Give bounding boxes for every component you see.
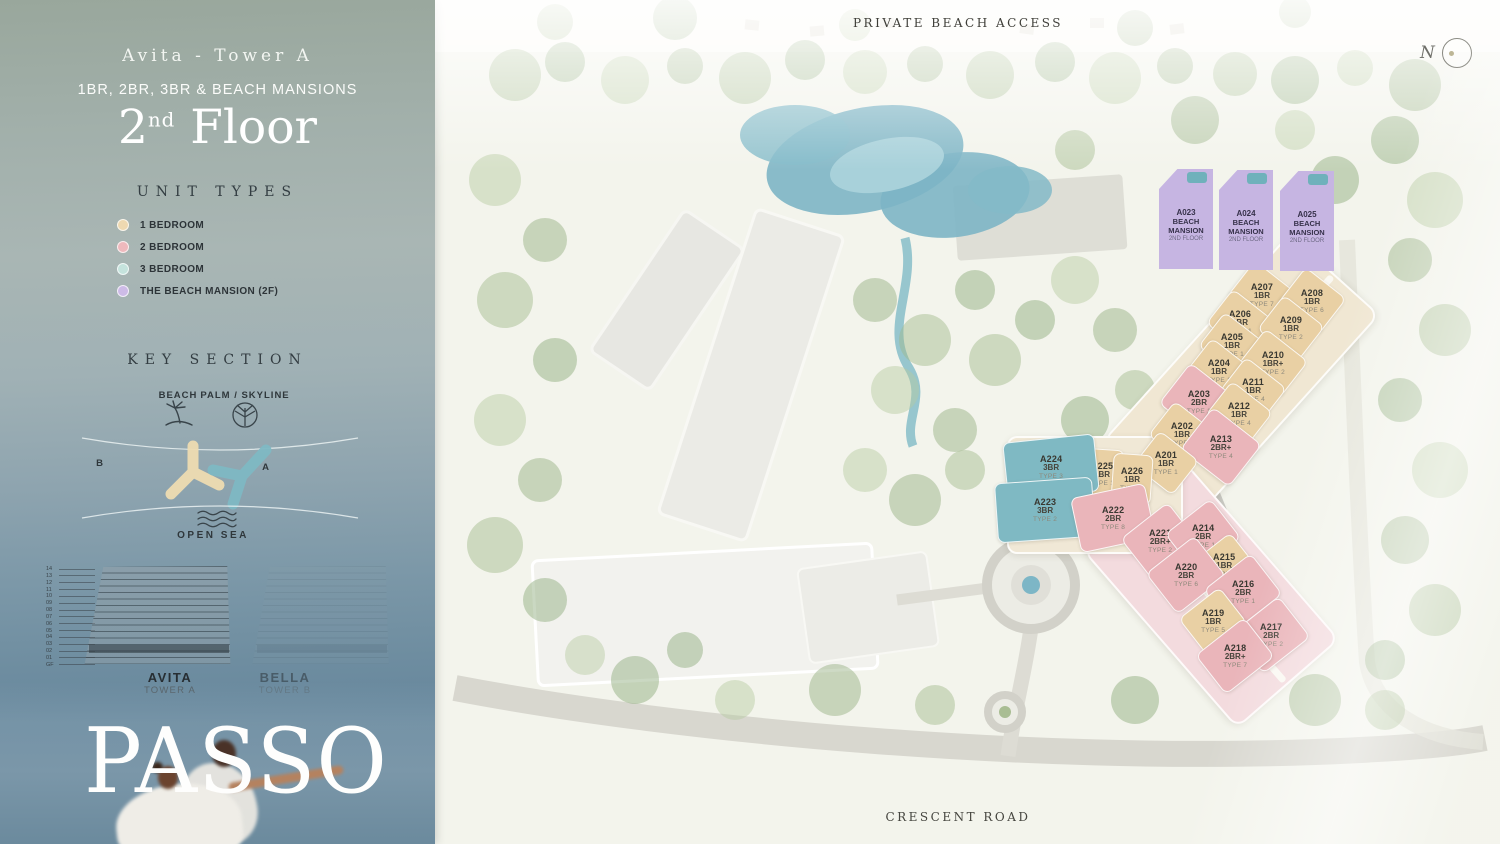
unit-bedrooms: 1BR xyxy=(1300,298,1324,307)
crescent-road-label: CRESCENT ROAD xyxy=(435,810,1481,824)
tree xyxy=(1388,238,1432,282)
mansion-floor: 2ND FLOOR xyxy=(1290,238,1324,244)
unit-type: TYPE 4 xyxy=(1209,453,1233,460)
tree xyxy=(1365,690,1405,730)
legend-label: 3 BEDROOM xyxy=(140,264,204,275)
legend-label: THE BEACH MANSION (2F) xyxy=(140,286,278,297)
tree xyxy=(1089,52,1141,104)
tree xyxy=(1051,256,1099,304)
tree xyxy=(523,218,567,262)
tower-a-letter: A xyxy=(262,462,270,473)
legend-color-dot xyxy=(117,263,129,275)
unit-type: TYPE 7 xyxy=(1223,662,1247,669)
tree xyxy=(474,394,526,446)
unit-bedrooms: 1BR xyxy=(1227,411,1251,420)
tree xyxy=(1157,48,1193,84)
beach-icon xyxy=(166,401,192,425)
mansion-pool xyxy=(1308,174,1328,185)
mansion-line2: MANSION xyxy=(1168,226,1203,235)
mansion-floor: 2ND FLOOR xyxy=(1229,237,1263,243)
tree xyxy=(871,366,919,414)
tree xyxy=(945,450,985,490)
legend-color-dot xyxy=(117,219,129,231)
tree xyxy=(1419,304,1471,356)
tree xyxy=(477,272,533,328)
tree xyxy=(1378,378,1422,422)
passo-logo: PASSO xyxy=(84,710,388,814)
unit-bedrooms: 1BR xyxy=(1250,292,1274,301)
tree xyxy=(1409,584,1461,636)
tree xyxy=(907,46,943,82)
tree xyxy=(601,56,649,104)
unit-bedrooms: 2BR xyxy=(1101,515,1125,524)
compass: N xyxy=(1420,38,1472,68)
mansion-id: A024 xyxy=(1236,209,1255,218)
mansion-line1: BEACH xyxy=(1233,218,1260,227)
private-beach-access-label: PRIVATE BEACH ACCESS xyxy=(435,16,1481,30)
site-plan: A2071BRTYPE 7A2081BRTYPE 6A2061BRTYPE 1A… xyxy=(435,0,1500,844)
tree xyxy=(719,52,771,104)
mansion-line2: MANSION xyxy=(1228,227,1263,236)
legend-label: 2 BEDROOM xyxy=(140,242,204,253)
tree xyxy=(809,664,861,716)
tree xyxy=(1015,300,1055,340)
tree xyxy=(889,474,941,526)
tree xyxy=(1213,52,1257,96)
unit-type: TYPE 1 xyxy=(1231,598,1255,605)
tree xyxy=(1337,50,1373,86)
unit-type: TYPE 1 xyxy=(1154,469,1178,476)
tree xyxy=(1289,674,1341,726)
sidebar: Avita - Tower A 1BR, 2BR, 3BR & BEACH MA… xyxy=(0,0,435,844)
tree xyxy=(667,48,703,84)
unit-bedrooms: 3BR xyxy=(1039,464,1063,473)
tree xyxy=(1412,442,1468,498)
legend-item-2: 2 BEDROOM xyxy=(117,236,278,258)
tree xyxy=(489,49,541,101)
unit-type-legend: 1 BEDROOM2 BEDROOM3 BEDROOMTHE BEACH MAN… xyxy=(117,214,278,302)
tree xyxy=(533,338,577,382)
mansion-floor: 2ND FLOOR xyxy=(1169,236,1203,242)
floor-title: 2nd Floor xyxy=(0,100,435,155)
unit-type: TYPE 2 xyxy=(1279,334,1303,341)
tree xyxy=(467,517,523,573)
tree xyxy=(611,656,659,704)
unit-type: TYPE 2 xyxy=(1148,547,1172,554)
unit-bedrooms: 3BR xyxy=(1033,507,1057,516)
tree xyxy=(899,314,951,366)
floor-suffix: nd xyxy=(148,108,175,131)
tree xyxy=(715,680,755,720)
tree xyxy=(518,458,562,502)
avita-elevation xyxy=(80,566,235,664)
unit-types-heading: UNIT TYPES xyxy=(0,184,435,200)
compass-north-label: N xyxy=(1420,43,1435,63)
legend-label: 1 BEDROOM xyxy=(140,220,204,231)
subtitle: 1BR, 2BR, 3BR & BEACH MANSIONS xyxy=(0,82,435,98)
tree xyxy=(843,50,887,94)
unit-type: TYPE 8 xyxy=(1101,524,1125,531)
key-section-diagram xyxy=(70,400,370,528)
floor-word: Floor xyxy=(190,100,317,155)
unit-bedrooms: 1BR xyxy=(1279,325,1303,334)
tree xyxy=(1111,676,1159,724)
mansion-A025[interactable]: A025BEACHMANSION2ND FLOOR xyxy=(1280,171,1334,271)
unit-bedrooms: 1BR xyxy=(1207,368,1231,377)
unit-bedrooms: 1BR xyxy=(1201,618,1225,627)
mansion-id: A025 xyxy=(1297,210,1316,219)
tree xyxy=(1055,130,1095,170)
legend-item-1: 1 BEDROOM xyxy=(117,214,278,236)
tree xyxy=(1371,116,1419,164)
tower-title: Avita - Tower A xyxy=(0,46,435,66)
unit-bedrooms: 2BR xyxy=(1174,572,1198,581)
tower-b-letter: B xyxy=(96,458,104,469)
floorplan-page: Avita - Tower A 1BR, 2BR, 3BR & BEACH MA… xyxy=(0,0,1500,844)
tree xyxy=(1381,516,1429,564)
mansion-line2: MANSION xyxy=(1289,228,1324,237)
floor-number: 2 xyxy=(118,100,148,155)
mansion-A024[interactable]: A024BEACHMANSION2ND FLOOR xyxy=(1219,170,1273,270)
mansion-A023[interactable]: A023BEACHMANSION2ND FLOOR xyxy=(1159,169,1213,269)
tree xyxy=(469,154,521,206)
legend-item-4: THE BEACH MANSION (2F) xyxy=(117,280,278,302)
compass-icon xyxy=(1442,38,1472,68)
mansion-line1: BEACH xyxy=(1294,219,1321,228)
tree xyxy=(1171,96,1219,144)
tree xyxy=(1035,42,1075,82)
unit-bedrooms: 2BR+ xyxy=(1223,653,1247,662)
tree xyxy=(1271,56,1319,104)
tree xyxy=(969,334,1021,386)
tree xyxy=(933,408,977,452)
mansion-pool xyxy=(1187,172,1207,183)
tree xyxy=(1407,172,1463,228)
tree xyxy=(853,278,897,322)
tree xyxy=(785,40,825,80)
unit-bedrooms: 1BR+ xyxy=(1261,360,1285,369)
waves-icon xyxy=(196,510,238,528)
tree xyxy=(565,635,605,675)
mansion-pool xyxy=(1247,173,1267,184)
tree xyxy=(667,632,703,668)
tree xyxy=(915,685,955,725)
tree xyxy=(1275,110,1315,150)
unit-bedrooms: 2BR xyxy=(1187,399,1211,408)
unit-bedrooms: 2BR xyxy=(1259,632,1283,641)
bella-elevation xyxy=(248,566,393,664)
unit-type: TYPE 2 xyxy=(1033,516,1057,523)
tree xyxy=(545,42,585,82)
key-section-heading: KEY SECTION xyxy=(0,352,435,368)
unit-bedrooms: 2BR xyxy=(1231,589,1255,598)
palm-skyline-icon xyxy=(233,403,257,427)
tree xyxy=(955,270,995,310)
unit-type: TYPE 5 xyxy=(1201,627,1225,634)
unit-bedrooms: 1BR xyxy=(1154,460,1178,469)
unit-type: TYPE 6 xyxy=(1174,581,1198,588)
unit-bedrooms: 2BR+ xyxy=(1209,444,1233,453)
mansion-line1: BEACH xyxy=(1173,217,1200,226)
tree xyxy=(843,448,887,492)
tree xyxy=(1365,640,1405,680)
tree xyxy=(523,578,567,622)
legend-item-3: 3 BEDROOM xyxy=(117,258,278,280)
open-sea-label: OPEN SEA xyxy=(0,530,426,541)
legend-color-dot xyxy=(117,285,129,297)
tree xyxy=(1093,308,1137,352)
legend-color-dot xyxy=(117,241,129,253)
tower-a-footprint xyxy=(213,450,266,504)
mansion-id: A023 xyxy=(1176,208,1195,217)
tree xyxy=(966,51,1014,99)
